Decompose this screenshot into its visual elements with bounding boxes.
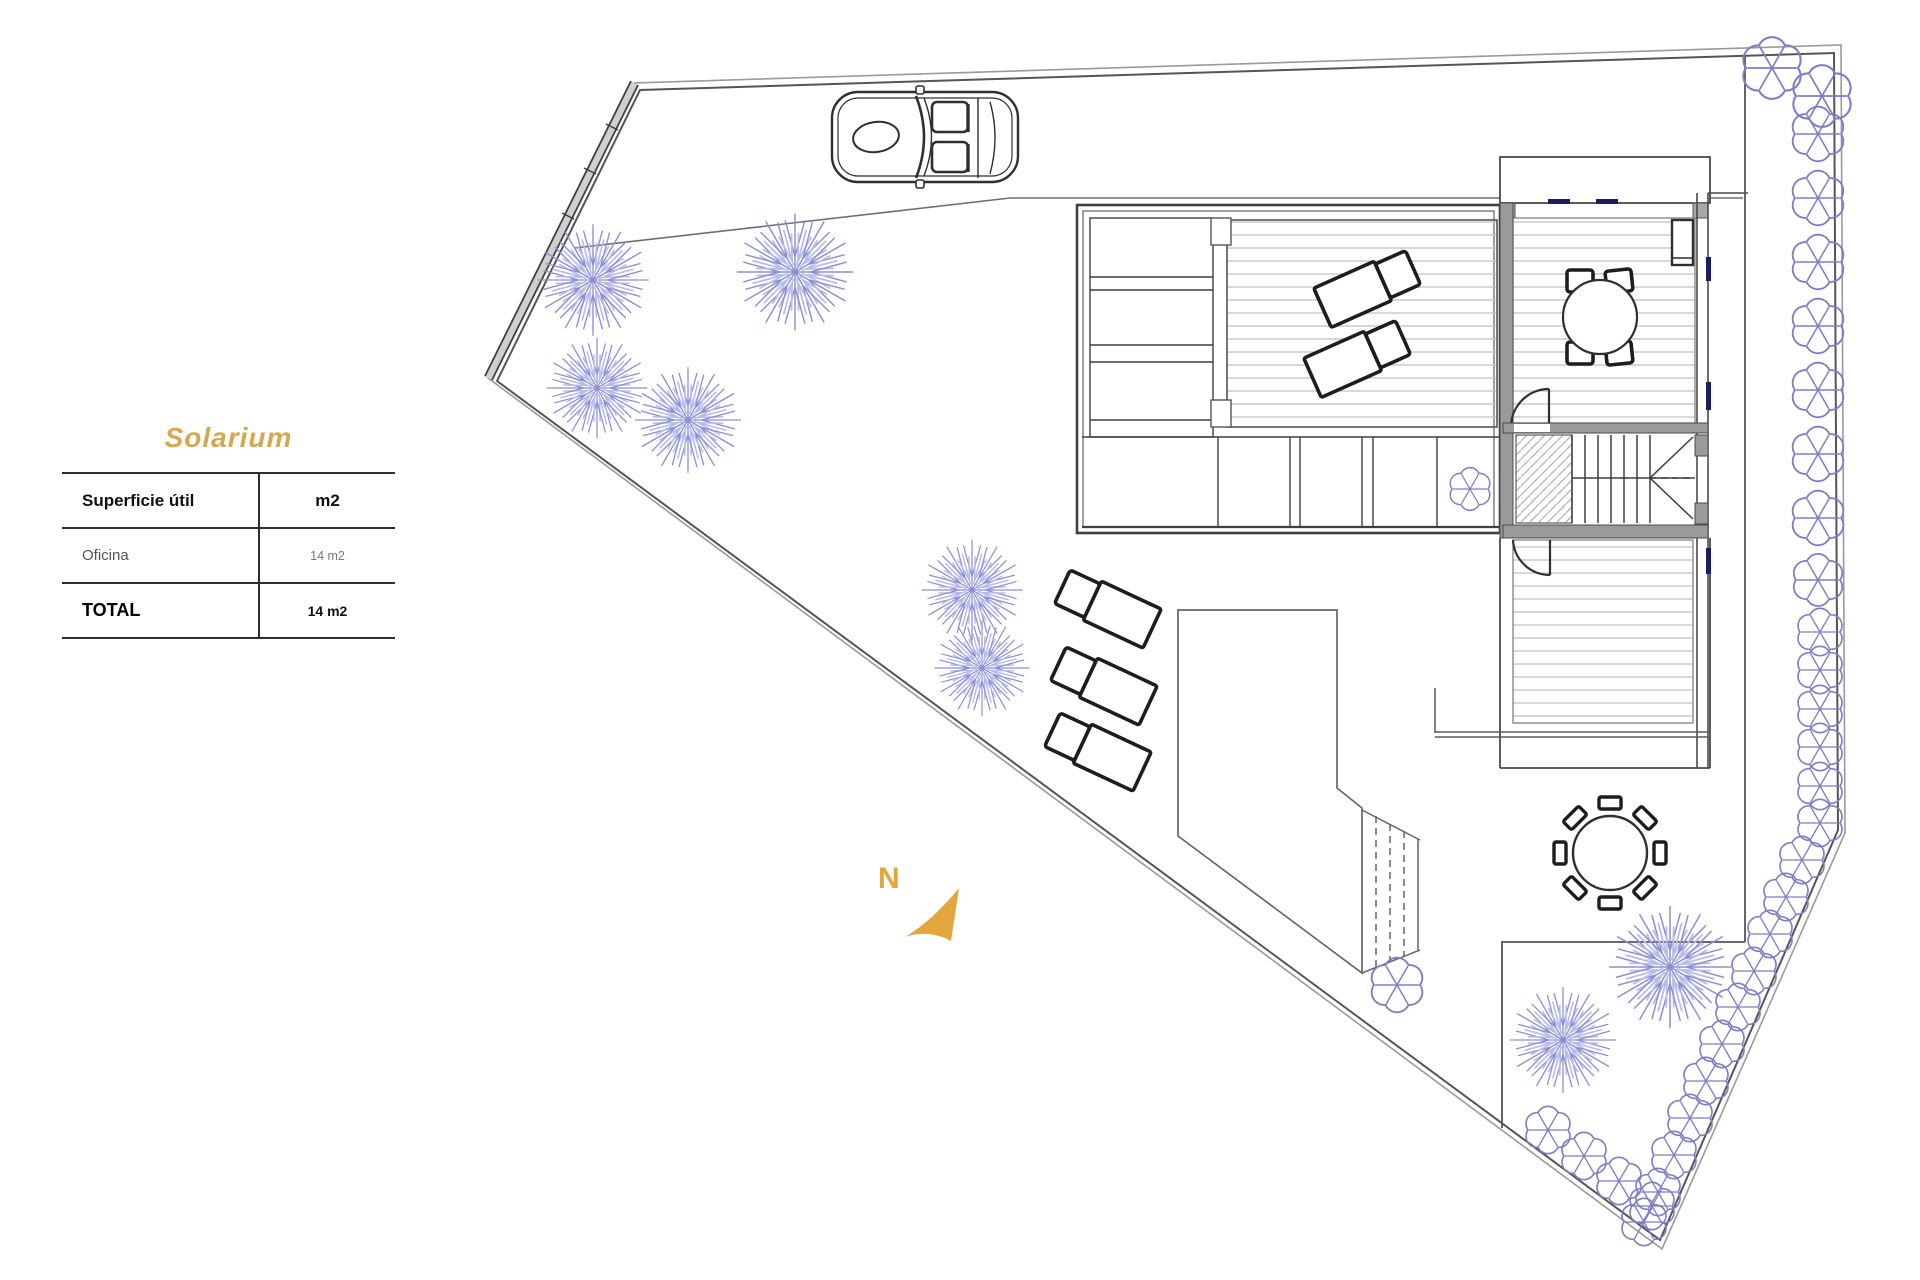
total-value: 14 m2	[259, 583, 395, 638]
shrub	[1793, 427, 1844, 482]
shrub	[1562, 1132, 1606, 1179]
shrub	[1798, 799, 1842, 846]
shrub	[1450, 468, 1490, 511]
window-marker	[1706, 257, 1711, 281]
table-header-row: Superficie útil m2	[62, 473, 395, 528]
terrace-steps	[1362, 810, 1420, 973]
shrub	[1372, 958, 1423, 1013]
area-table: Superficie útil m2 Oficina 14 m2 TOTAL 1…	[62, 472, 395, 639]
balcony	[1500, 157, 1710, 218]
tree	[934, 620, 1029, 715]
site-plan-drawing	[0, 0, 1920, 1280]
tree	[1510, 987, 1616, 1093]
shrub	[1764, 873, 1808, 920]
shrub	[1652, 1131, 1696, 1178]
stairwell	[1503, 423, 1708, 538]
total-label: TOTAL	[62, 583, 259, 638]
shrub	[1684, 1057, 1728, 1104]
shrub	[1793, 491, 1844, 546]
shrub	[1780, 836, 1824, 883]
tree	[922, 540, 1023, 641]
window-marker	[1706, 548, 1711, 574]
tree	[1609, 906, 1731, 1028]
table-total-row: TOTAL 14 m2	[62, 583, 395, 638]
shrub	[1793, 65, 1850, 127]
shrub	[1798, 608, 1842, 655]
lounger	[1053, 567, 1161, 648]
header-superficie: Superficie útil	[62, 473, 259, 528]
window-marker	[1706, 382, 1711, 410]
north-label: N	[878, 862, 900, 896]
north-arrow: N	[870, 862, 980, 952]
lower-deck	[1435, 538, 1711, 768]
outdoor-dining-table	[1554, 797, 1666, 909]
window-marker	[1548, 199, 1570, 204]
shrub	[1793, 107, 1844, 162]
boundary-wall	[485, 81, 638, 380]
shrub	[1700, 1020, 1744, 1067]
shrub	[1793, 363, 1844, 418]
header-m2: m2	[259, 473, 395, 528]
car	[832, 86, 1018, 188]
indoor-dining-table	[1563, 269, 1637, 366]
terrace	[1178, 610, 1420, 973]
tree	[737, 214, 854, 331]
tree	[547, 338, 648, 439]
corridor	[1082, 437, 1500, 527]
shrub	[1748, 910, 1792, 957]
shrub	[1798, 646, 1842, 693]
shrub	[1798, 723, 1842, 770]
shrub	[1668, 1094, 1712, 1141]
lounger	[1049, 644, 1157, 725]
solarium-plan-page: Solarium Superficie útil m2 Oficina 14 m…	[0, 0, 1920, 1280]
sun-deck	[1211, 218, 1497, 427]
shrub	[1793, 171, 1844, 226]
shrub	[1794, 554, 1842, 606]
shrub	[1597, 1157, 1641, 1204]
tree	[635, 367, 741, 473]
shrub	[1798, 762, 1842, 809]
legend-title: Solarium	[62, 422, 395, 454]
shrub	[1526, 1106, 1570, 1153]
stair-treads	[1572, 435, 1695, 523]
table-row: Oficina 14 m2	[62, 528, 395, 583]
room-strip	[1090, 218, 1213, 437]
shrub	[1798, 685, 1842, 732]
shrub	[1732, 947, 1776, 994]
legend: Solarium Superficie útil m2 Oficina 14 m…	[62, 422, 395, 639]
row-value: 14 m2	[259, 528, 395, 583]
shrub	[1793, 299, 1844, 354]
stair-void-hatch	[1516, 435, 1572, 523]
window-marker	[1596, 199, 1618, 204]
shrub	[1793, 235, 1844, 290]
shrub	[1716, 983, 1760, 1030]
garden-shrubs	[1372, 468, 1490, 1013]
row-label: Oficina	[62, 528, 259, 583]
